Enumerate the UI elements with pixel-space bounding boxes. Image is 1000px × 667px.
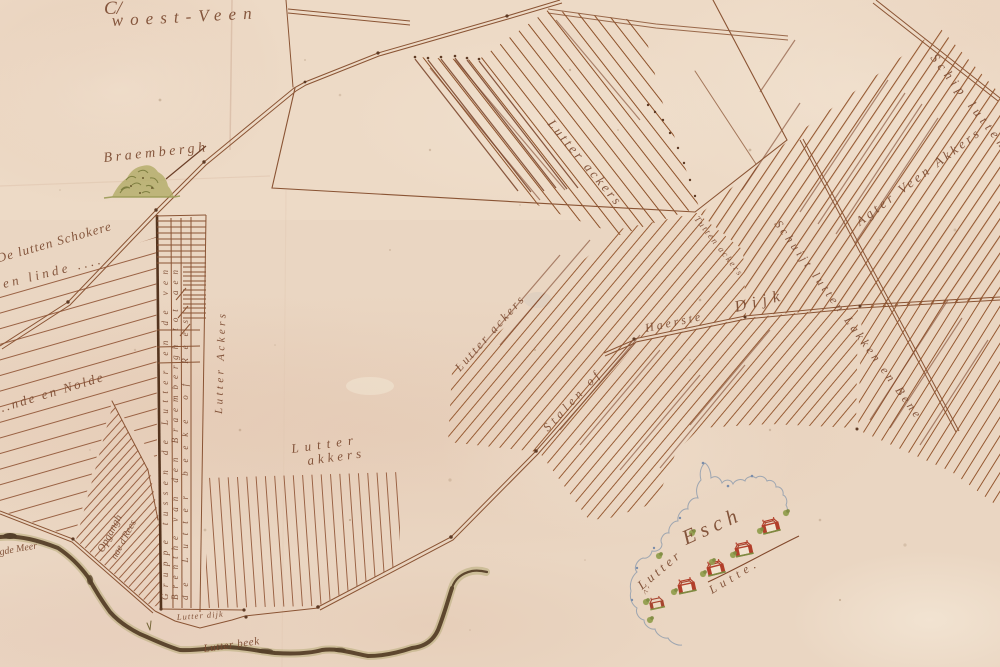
svg-text:C/: C/ (104, 0, 124, 19)
svg-text:de Lutter beeke of Rees: de Lutter beeke of Rees (180, 320, 190, 600)
